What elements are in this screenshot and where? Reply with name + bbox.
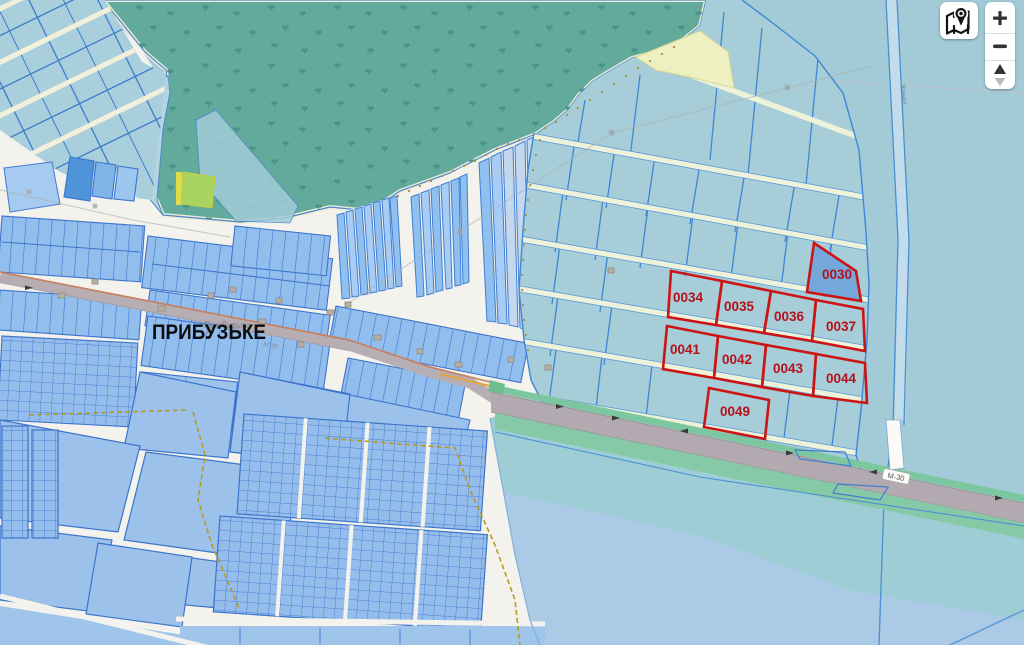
svg-text:0042: 0042: [722, 352, 752, 367]
svg-text:Канал: Канал: [899, 85, 907, 105]
svg-text:0041: 0041: [670, 342, 701, 357]
svg-text:0044: 0044: [826, 371, 857, 386]
svg-text:0036: 0036: [774, 309, 805, 324]
svg-text:0037: 0037: [826, 319, 856, 334]
svg-text:0049: 0049: [720, 404, 750, 419]
svg-text:ПРИБУЗЬКЕ: ПРИБУЗЬКЕ: [152, 320, 266, 344]
svg-text:0043: 0043: [773, 361, 804, 376]
svg-text:0035: 0035: [724, 299, 755, 314]
svg-text:0034: 0034: [673, 290, 704, 305]
svg-text:0030: 0030: [822, 267, 852, 282]
